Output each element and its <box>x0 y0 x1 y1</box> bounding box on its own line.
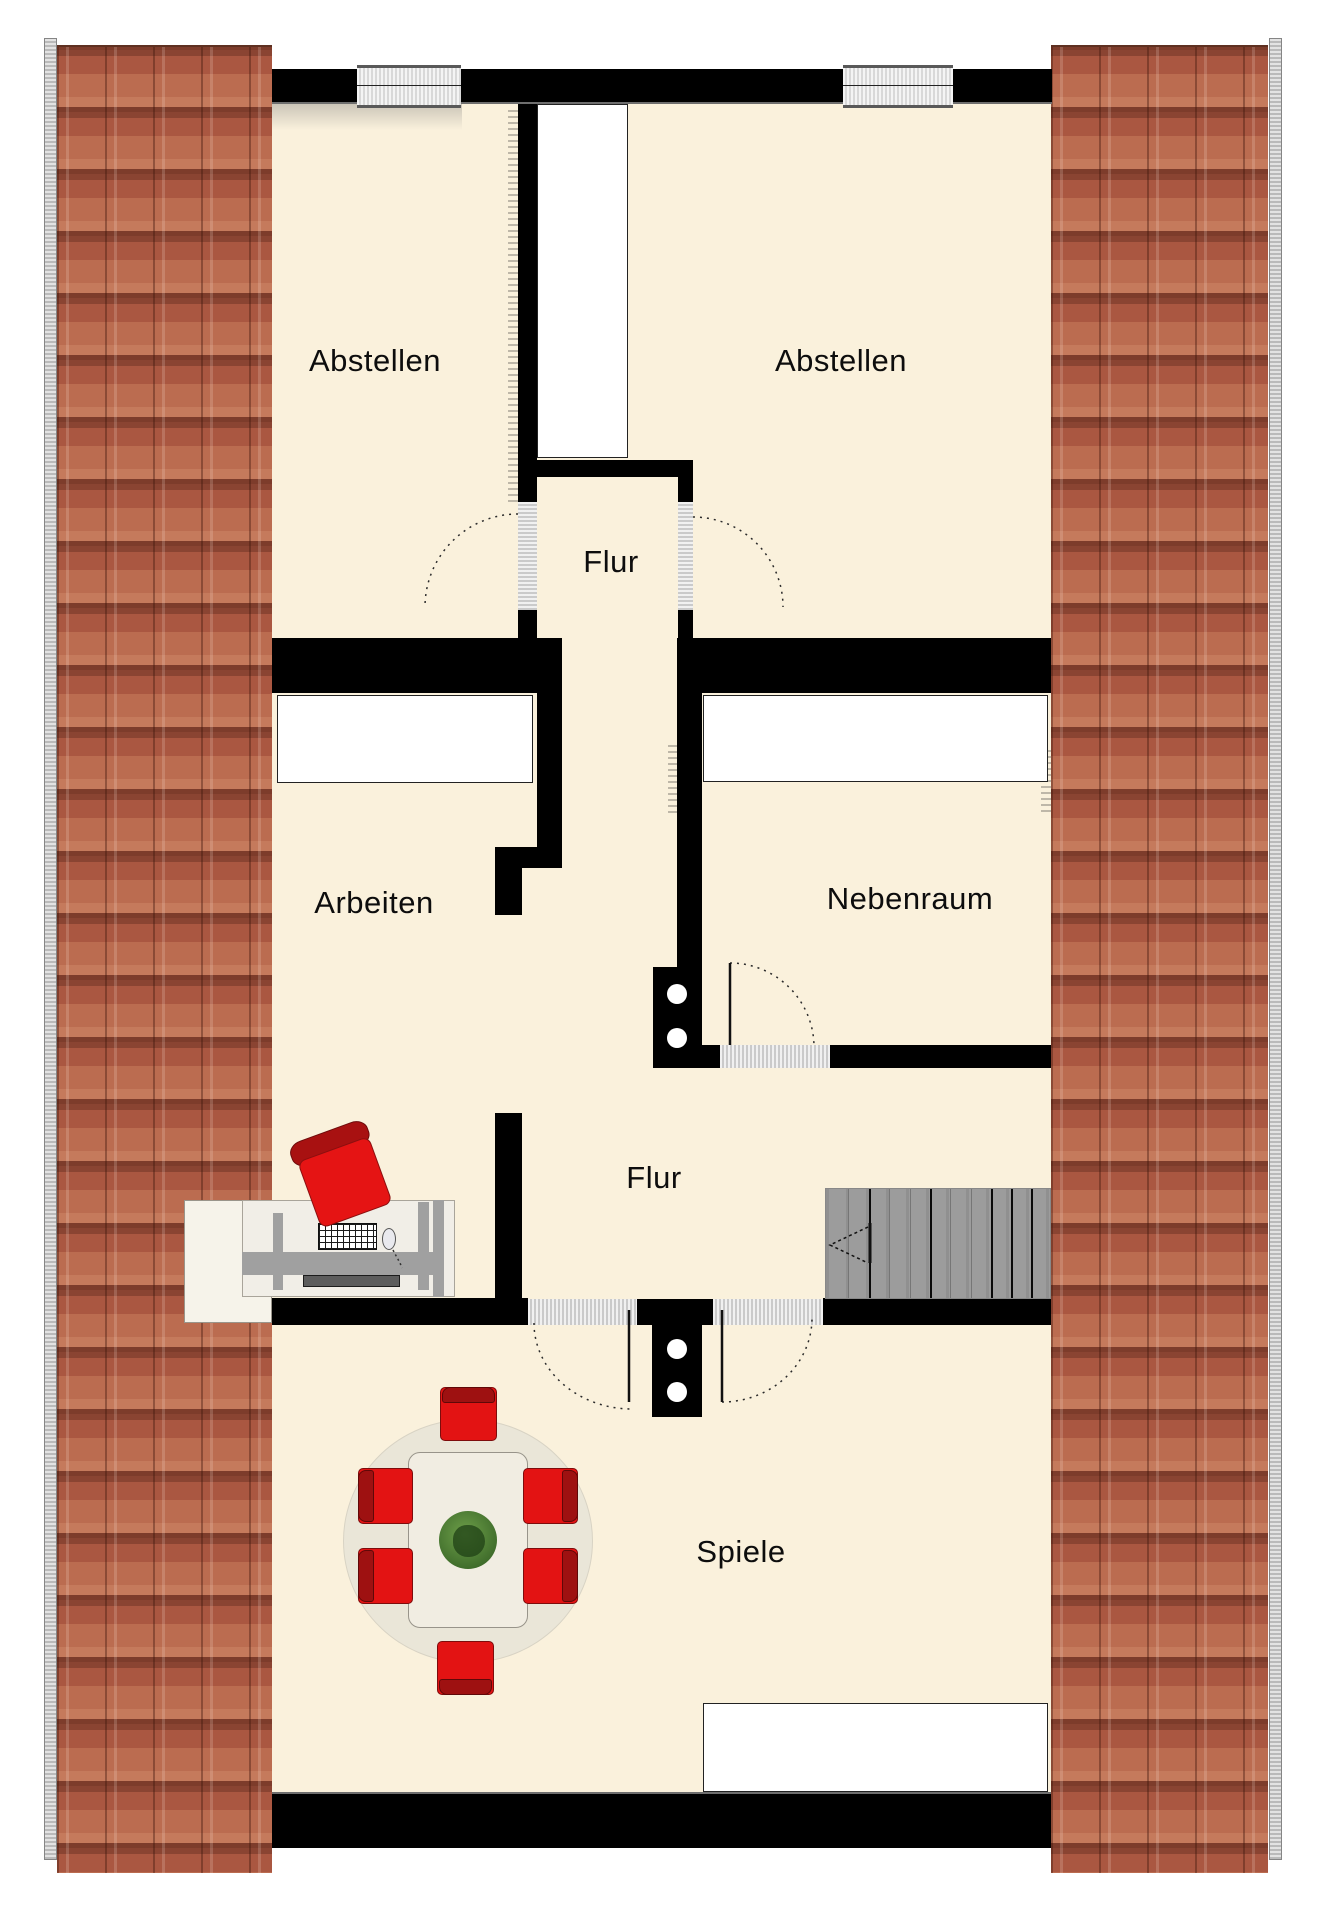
vent-pipe-icon <box>667 984 687 1004</box>
roof-tiles-left <box>57 45 272 1873</box>
door-opening-nebenraum <box>720 1045 830 1068</box>
dining-chair <box>440 1387 497 1441</box>
dining-chair <box>358 1548 413 1604</box>
floorplan-canvas: Abstellen Abstellen Flur Arbeiten Nebenr… <box>0 0 1336 1919</box>
chimney-shaft <box>537 104 628 458</box>
roof-tiles-right <box>1051 45 1268 1873</box>
wall-stub-right-lower <box>678 610 693 638</box>
wall-mid-right <box>677 638 1051 693</box>
roof-edge-left <box>44 38 57 1860</box>
staircase <box>825 1188 1051 1299</box>
room-label-nebenraum: Nebenraum <box>827 881 993 917</box>
slope-hatch-1 <box>508 110 518 502</box>
door-opening-spiele-left <box>528 1299 637 1325</box>
room-label-flur-top: Flur <box>583 544 638 580</box>
vent-pipe-icon <box>667 1339 687 1359</box>
door-opening-abstellen-left <box>518 502 537 610</box>
room-label-spiele: Spiele <box>696 1534 785 1570</box>
door-opening-spiele-right <box>713 1299 823 1325</box>
wall-under-stairs <box>823 1298 1051 1325</box>
dining-chair <box>523 1468 578 1524</box>
dining-chair <box>437 1641 494 1695</box>
room-label-arbeiten: Arbeiten <box>314 885 433 921</box>
desk-shelf <box>303 1275 400 1287</box>
desk-leg-right-2 <box>433 1200 444 1297</box>
wall-nebenraum-bottom <box>830 1045 1051 1068</box>
wall-jog-down <box>495 868 522 915</box>
roof-window-right <box>843 65 953 108</box>
door-opening-abstellen-right <box>678 502 693 610</box>
dining-chair <box>358 1468 413 1524</box>
room-label-abstellen-left: Abstellen <box>309 343 441 379</box>
room-label-abstellen-right: Abstellen <box>775 343 907 379</box>
vent-shaft-block-1-flange <box>653 1045 720 1068</box>
roof-edge-right <box>1269 38 1282 1860</box>
wall-corridor-right <box>677 638 702 967</box>
plant-inner-foliage <box>453 1525 485 1557</box>
vent-shaft-block-2-flange <box>637 1299 713 1325</box>
vent-pipe-icon <box>667 1028 687 1048</box>
desk-crossbar <box>242 1252 440 1275</box>
wall-corridor-left <box>537 638 562 868</box>
room-label-flur-lower: Flur <box>626 1160 681 1196</box>
knee-wall-recess-bottom <box>703 1703 1048 1792</box>
roof-window-left <box>357 65 461 108</box>
desk-leg-right-1 <box>418 1202 429 1290</box>
wall-vert-left-upper <box>518 104 537 502</box>
wall-flur-bottom-left <box>272 1298 528 1325</box>
closet-left <box>277 695 533 783</box>
dining-chair <box>523 1548 578 1604</box>
vent-pipe-icon <box>667 1382 687 1402</box>
closet-right <box>703 695 1048 782</box>
wall-stub-right-upper <box>678 477 693 502</box>
mouse-icon <box>382 1228 396 1250</box>
wall-jog-bar <box>495 847 562 868</box>
wall-mid-left <box>272 638 537 693</box>
wall-stub-left <box>518 610 537 638</box>
slope-hatch-2 <box>668 745 677 815</box>
wall-bottom <box>272 1792 1051 1848</box>
wall-arbeiten-right-lower <box>495 1113 522 1298</box>
wall-chimney-bottom <box>537 460 693 477</box>
